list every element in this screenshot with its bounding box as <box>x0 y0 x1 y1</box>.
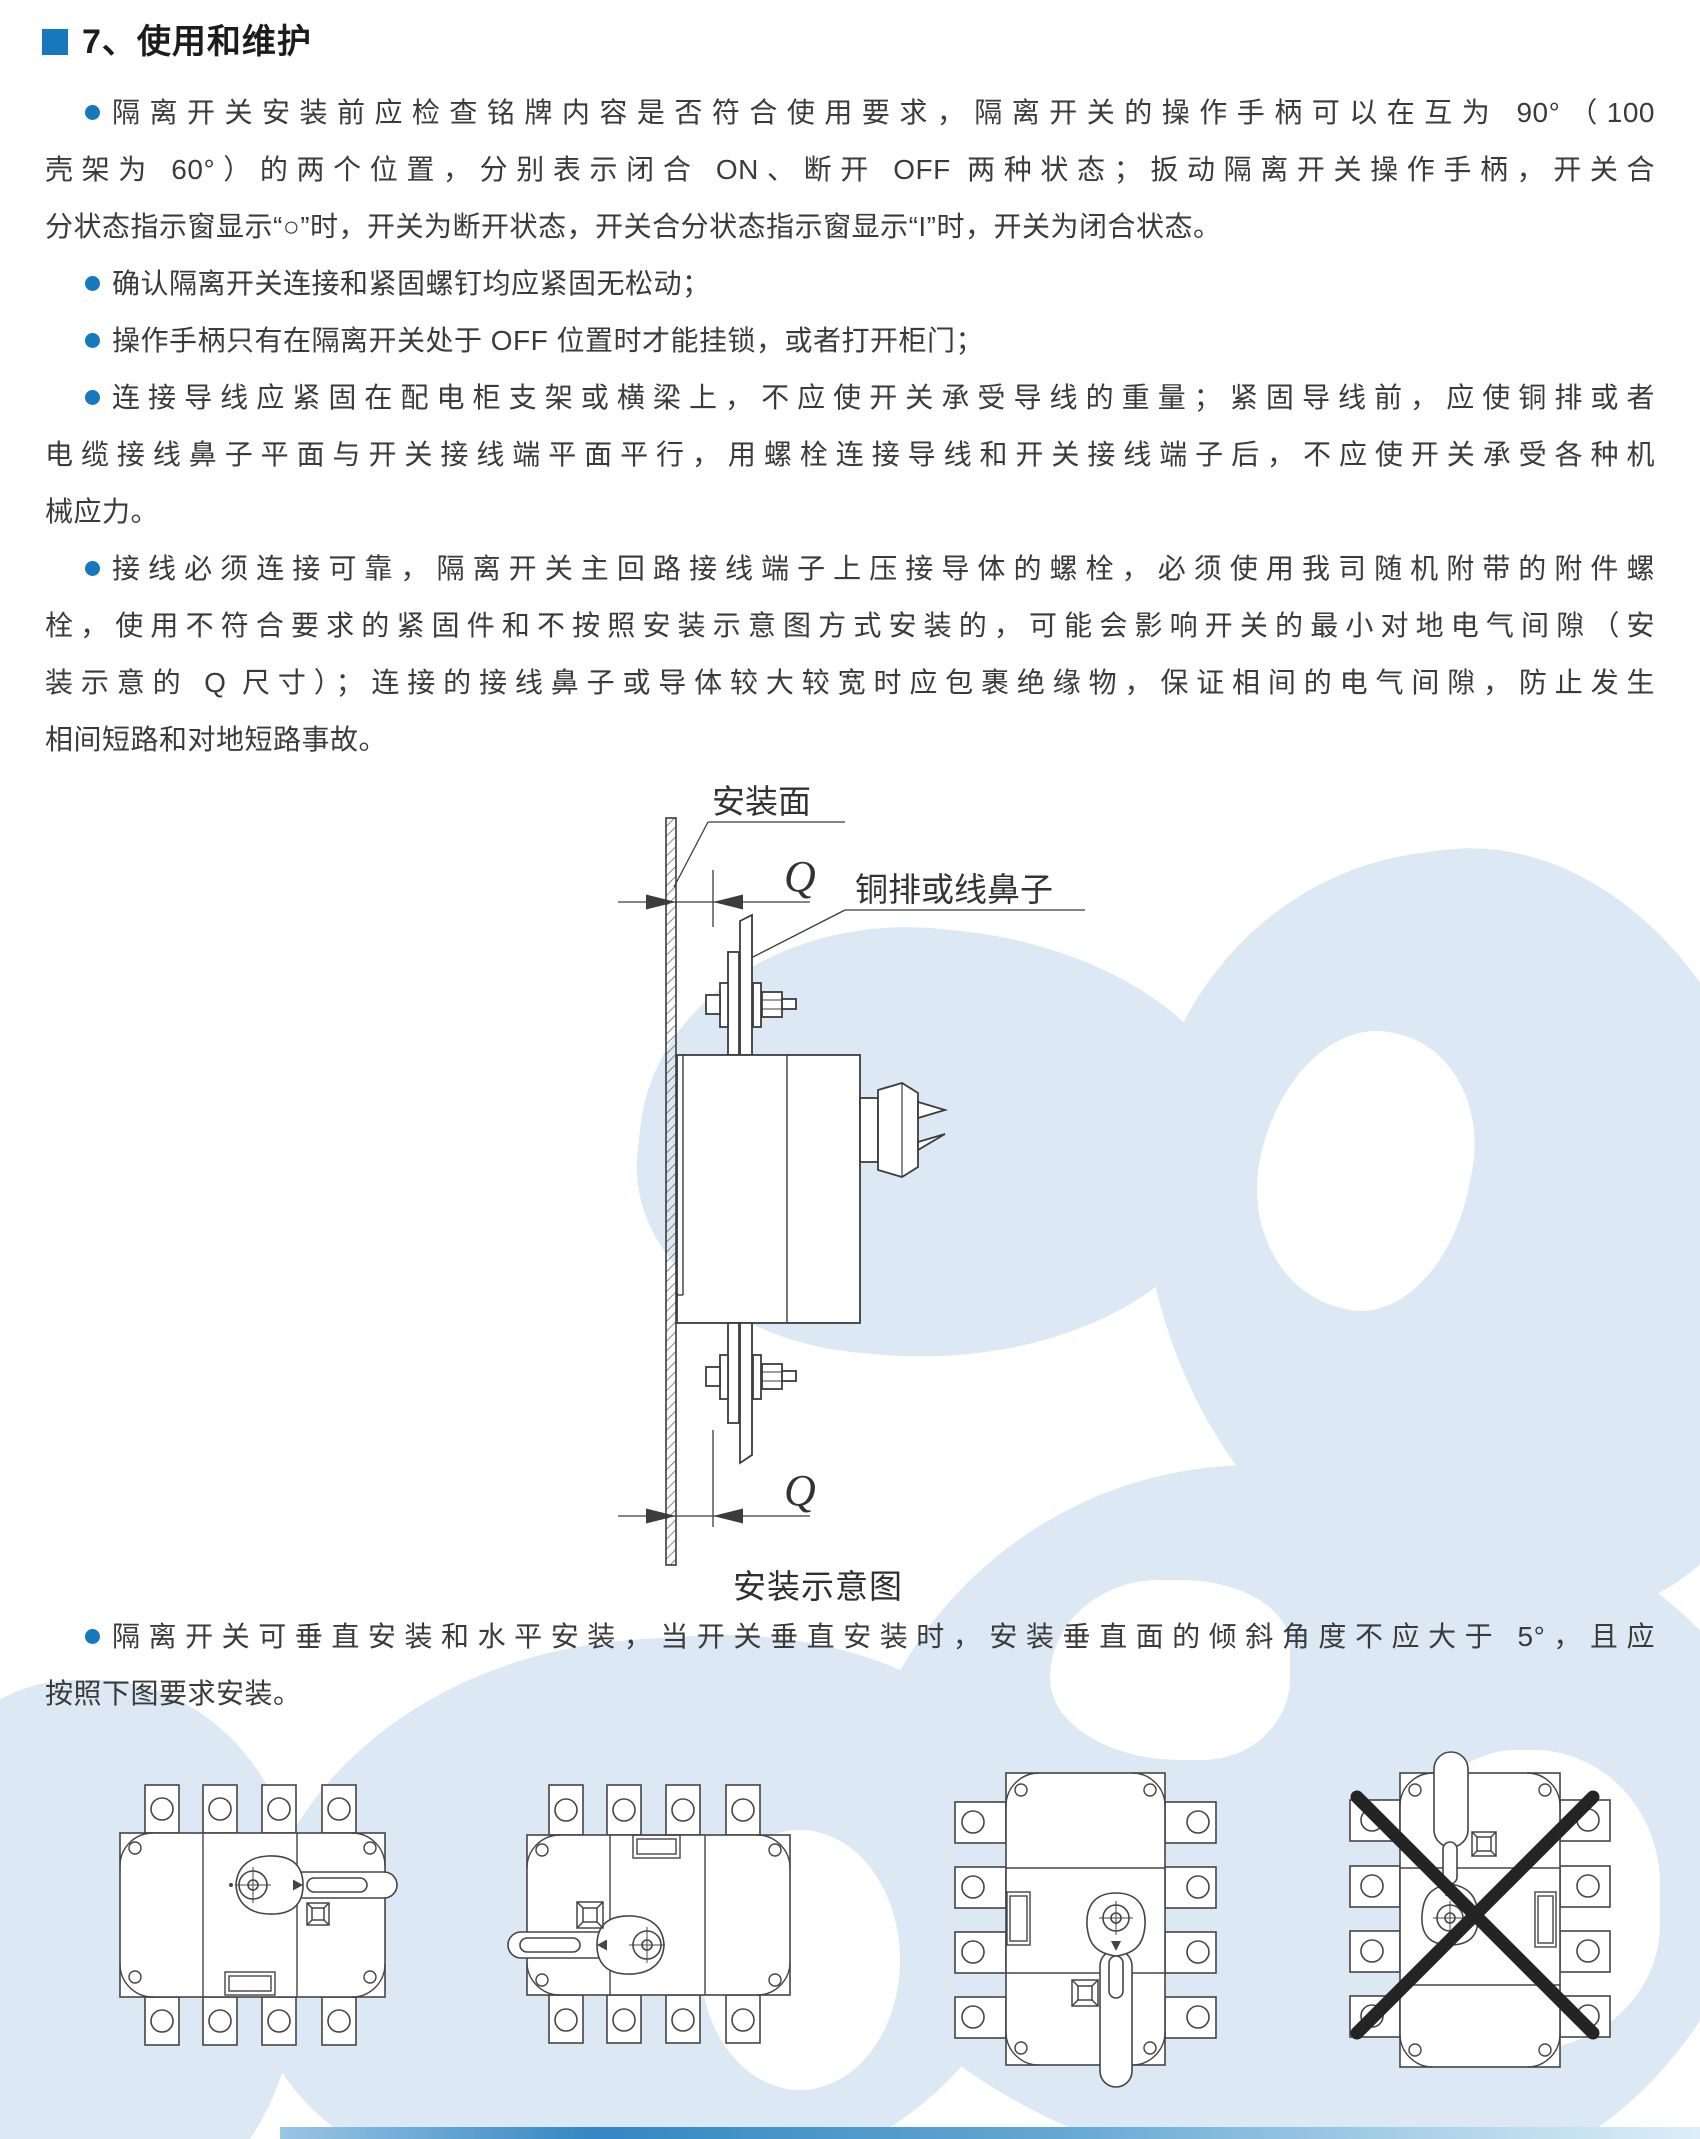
handle-knob <box>878 1083 918 1177</box>
paragraph-1-line-3: 分状态指示窗显示“○”时，开关为断开状态，开关合分状态指示窗显示“I”时，开关为… <box>45 198 1655 255</box>
body-text: 隔离开关安装前应检查铭牌内容是否符合使用要求，隔离开关的操作手柄可以在互为 90… <box>45 84 1655 768</box>
bullet-icon <box>85 333 100 348</box>
paragraph-5-line-1: 接线必须连接可靠，隔离开关主回路接线端子上压接导体的螺栓，必须使用我司随机附带的… <box>45 540 1655 597</box>
text: 相间短路和对地短路事故。 <box>45 724 387 755</box>
text: 连接导线应紧固在配电柜支架或横梁上，不应使开关承受导线的重量；紧固导线前，应使铜… <box>112 382 1655 413</box>
nut <box>762 1364 782 1389</box>
text: 壳架为 60°）的两个位置，分别表示闭合 ON、断开 OFF 两种状态；扳动隔离… <box>45 154 1655 185</box>
paragraph-1-line-1: 隔离开关安装前应检查铭牌内容是否符合使用要求，隔离开关的操作手柄可以在互为 90… <box>45 84 1655 141</box>
manual-page: 7、使用和维护 隔离开关安装前应检查铭牌内容是否符合使用要求，隔离开关的操作手柄… <box>0 0 1700 2139</box>
heading-square-icon <box>42 29 68 55</box>
paragraph-1-line-2: 壳架为 60°）的两个位置，分别表示闭合 ON、断开 OFF 两种状态；扳动隔离… <box>45 141 1655 198</box>
label-leader <box>674 822 708 887</box>
washer <box>753 1355 761 1399</box>
paragraph-5-line-3: 装示意的 Q 尺寸）；连接的接线鼻子或导体较大较宽时应包裹绝缘物，保证相间的电气… <box>45 654 1655 711</box>
busbar-plate <box>740 915 752 1055</box>
switch-drawing-horizontal-handle-left <box>500 1780 820 2070</box>
text: 装示意的 Q 尺寸）；连接的接线鼻子或导体较大较宽时应包裹绝缘物，保证相间的电气… <box>45 667 1655 698</box>
mounting-wall <box>666 818 676 1565</box>
switch-terminal-plate <box>728 952 739 1055</box>
text: 操作手柄只有在隔离开关处于 OFF 位置时才能挂锁，或者打开柜门； <box>112 325 984 356</box>
paragraph-3-line-1: 操作手柄只有在隔离开关处于 OFF 位置时才能挂锁，或者打开柜门； <box>45 312 1655 369</box>
handle-wing <box>918 1102 945 1118</box>
bullet-icon <box>85 105 100 120</box>
bolt-thread <box>782 1371 796 1381</box>
text: 械应力。 <box>45 496 159 527</box>
dimension-arrow-icon <box>713 1509 743 1524</box>
dimension-q-label: Q <box>784 852 816 901</box>
text: 接线必须连接可靠，隔离开关主回路接线端子上压接导体的螺栓，必须使用我司随机附带的… <box>112 553 1655 584</box>
washer <box>720 983 728 1027</box>
bolt-head <box>706 1367 720 1386</box>
paragraph-4-line-3: 械应力。 <box>45 483 1655 540</box>
diagram-caption: 安装示意图 <box>733 1560 903 1608</box>
bolt-thread <box>782 999 796 1009</box>
text: 隔离开关可垂直安装和水平安装，当开关垂直安装时，安装垂直面的倾斜角度不应大于 5… <box>112 1621 1655 1652</box>
busbar-label: 铜排或线鼻子 <box>855 871 1053 908</box>
text: 栓，使用不符合要求的紧固件和不按照安装示意图方式安装的，可能会影响开关的最小对地… <box>45 610 1655 641</box>
busbar-plate <box>740 1323 752 1463</box>
label-leader <box>749 910 845 959</box>
washer <box>753 983 761 1027</box>
bolt-head <box>706 995 720 1014</box>
text: 分状态指示窗显示“○”时，开关为断开状态，开关合分状态指示窗显示“I”时，开关为… <box>45 211 1222 242</box>
dimension-arrow-icon <box>713 895 743 910</box>
paragraph-5-line-2: 栓，使用不符合要求的紧固件和不按照安装示意图方式安装的，可能会影响开关的最小对地… <box>45 597 1655 654</box>
bullet-icon <box>85 390 100 405</box>
switch-body <box>527 1835 790 1995</box>
washer <box>720 1355 728 1399</box>
handle-wing <box>918 1134 945 1150</box>
text: 确认隔离开关连接和紧固螺钉均应紧固无松动； <box>112 268 711 299</box>
paragraph-5-line-4: 相间短路和对地短路事故。 <box>45 711 1655 768</box>
mounting-surface-label: 安装面 <box>712 783 811 820</box>
nut <box>762 992 782 1017</box>
text: 隔离开关安装前应检查铭牌内容是否符合使用要求，隔离开关的操作手柄可以在互为 90… <box>112 97 1655 128</box>
bullet-icon <box>85 561 100 576</box>
text: 电缆接线鼻子平面与开关接线端平面平行，用螺栓连接导线和开关接线端子后，不应使开关… <box>45 439 1655 470</box>
switch-drawing-vertical-handle-up-prohibited <box>1330 1690 1630 2090</box>
section-heading: 7、使用和维护 <box>42 14 312 63</box>
switch-drawing-horizontal-handle-right <box>85 1780 415 2070</box>
switch-terminal-plate <box>728 1323 739 1423</box>
installation-diagram: 安装面 铜排或线鼻子 Q <box>440 775 1120 1625</box>
switch-body-side-view <box>677 1055 860 1323</box>
footer-bar <box>280 2127 1700 2139</box>
paragraph-4-line-1: 连接导线应紧固在配电柜支架或横梁上，不应使开关承受导线的重量；紧固导线前，应使铜… <box>45 369 1655 426</box>
paragraph-6-line-1: 隔离开关可垂直安装和水平安装，当开关垂直安装时，安装垂直面的倾斜角度不应大于 5… <box>45 1608 1655 1665</box>
section-heading-text: 7、使用和维护 <box>82 23 312 61</box>
dimension-q-label: Q <box>784 1466 816 1515</box>
bullet-icon <box>85 1629 100 1644</box>
bullet-icon <box>85 276 100 291</box>
switch-drawing-vertical-handle-down <box>940 1760 1230 2100</box>
paragraph-2-line-1: 确认隔离开关连接和紧固螺钉均应紧固无松动； <box>45 255 1655 312</box>
text: 按照下图要求安装。 <box>45 1678 302 1709</box>
handle-neck <box>860 1098 878 1162</box>
paragraph-4-line-2: 电缆接线鼻子平面与开关接线端平面平行，用螺栓连接导线和开关接线端子后，不应使开关… <box>45 426 1655 483</box>
